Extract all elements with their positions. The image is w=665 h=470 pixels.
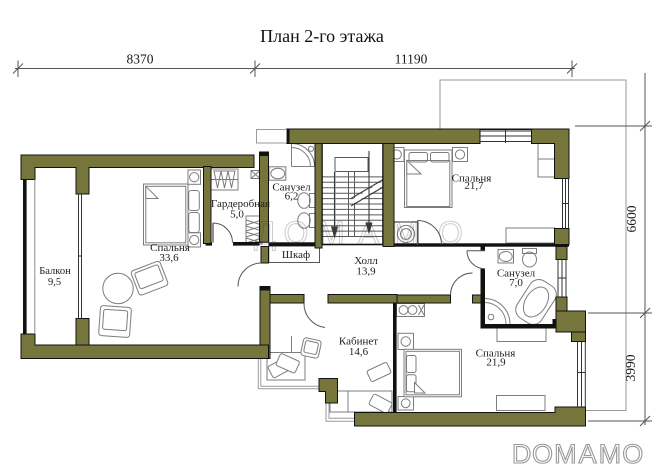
svg-text:Д: Д (254, 215, 276, 251)
svg-text:21,7: 21,7 (464, 180, 484, 192)
svg-text:9,5: 9,5 (48, 277, 61, 288)
svg-text:M: M (554, 439, 577, 469)
svg-text:Балкон: Балкон (39, 266, 71, 277)
svg-text:О: О (284, 215, 309, 251)
svg-text:6600: 6600 (624, 205, 639, 232)
svg-text:3990: 3990 (623, 354, 638, 381)
svg-text:A: A (579, 439, 597, 469)
svg-text:O: O (532, 439, 553, 469)
svg-text:О: О (438, 215, 463, 251)
svg-text:7,0: 7,0 (509, 277, 523, 289)
svg-text:5,0: 5,0 (230, 209, 244, 221)
svg-text:А: А (358, 215, 380, 251)
svg-text:6,2: 6,2 (285, 191, 299, 203)
svg-text:11190: 11190 (395, 52, 428, 67)
svg-text:14,6: 14,6 (349, 346, 369, 358)
svg-text:М: М (392, 215, 419, 251)
svg-text:13,9: 13,9 (356, 266, 376, 278)
svg-text:33,6: 33,6 (159, 252, 179, 264)
svg-text:D: D (512, 439, 532, 469)
svg-text:O: O (622, 439, 643, 469)
svg-text:21,9: 21,9 (486, 357, 506, 369)
svg-text:М: М (318, 215, 345, 251)
svg-text:План 2-го этажа: План 2-го этажа (260, 26, 384, 46)
svg-text:8370: 8370 (127, 52, 154, 67)
svg-text:M: M (599, 439, 622, 469)
